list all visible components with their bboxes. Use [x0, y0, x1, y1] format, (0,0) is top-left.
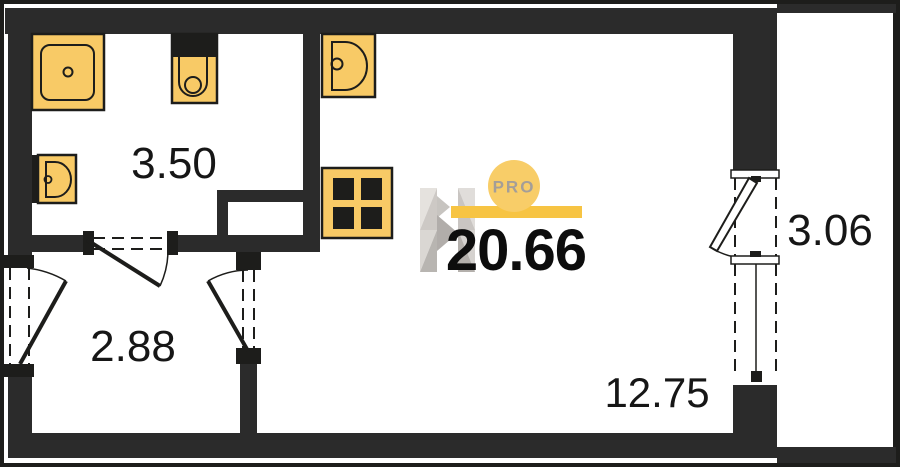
- balcony-area-label: 3.06: [787, 209, 873, 253]
- washbasin-icon: [32, 155, 76, 203]
- living-zone-area-label: 12.75: [604, 372, 709, 414]
- door-swing-arc: [160, 252, 168, 286]
- entry-door: [10, 268, 66, 364]
- shower-icon: [32, 34, 104, 110]
- door-swing-arc: [27, 268, 66, 281]
- stove-icon: [322, 168, 392, 238]
- ventilation-shaft: [228, 202, 303, 235]
- kitchen-sink-icon: [322, 34, 375, 97]
- bathroom-area-label: 3.50: [131, 142, 217, 186]
- door-leaf: [87, 240, 160, 286]
- door-leaf: [710, 178, 757, 251]
- toilet-icon: [172, 34, 217, 103]
- room-door: [208, 270, 254, 351]
- total-area-label: 20.66: [446, 222, 586, 280]
- hallway-area-label: 2.88: [90, 325, 176, 369]
- balcony-window: [735, 264, 776, 382]
- window-sill: [731, 256, 779, 264]
- door-leaf: [20, 281, 66, 364]
- bathroom-door: [87, 238, 168, 286]
- pro-badge-label: PRO: [493, 179, 536, 196]
- balcony-door: [710, 170, 779, 264]
- floorplan: PRO 20.66 3.50 2.88 12.75 3.06: [0, 0, 900, 467]
